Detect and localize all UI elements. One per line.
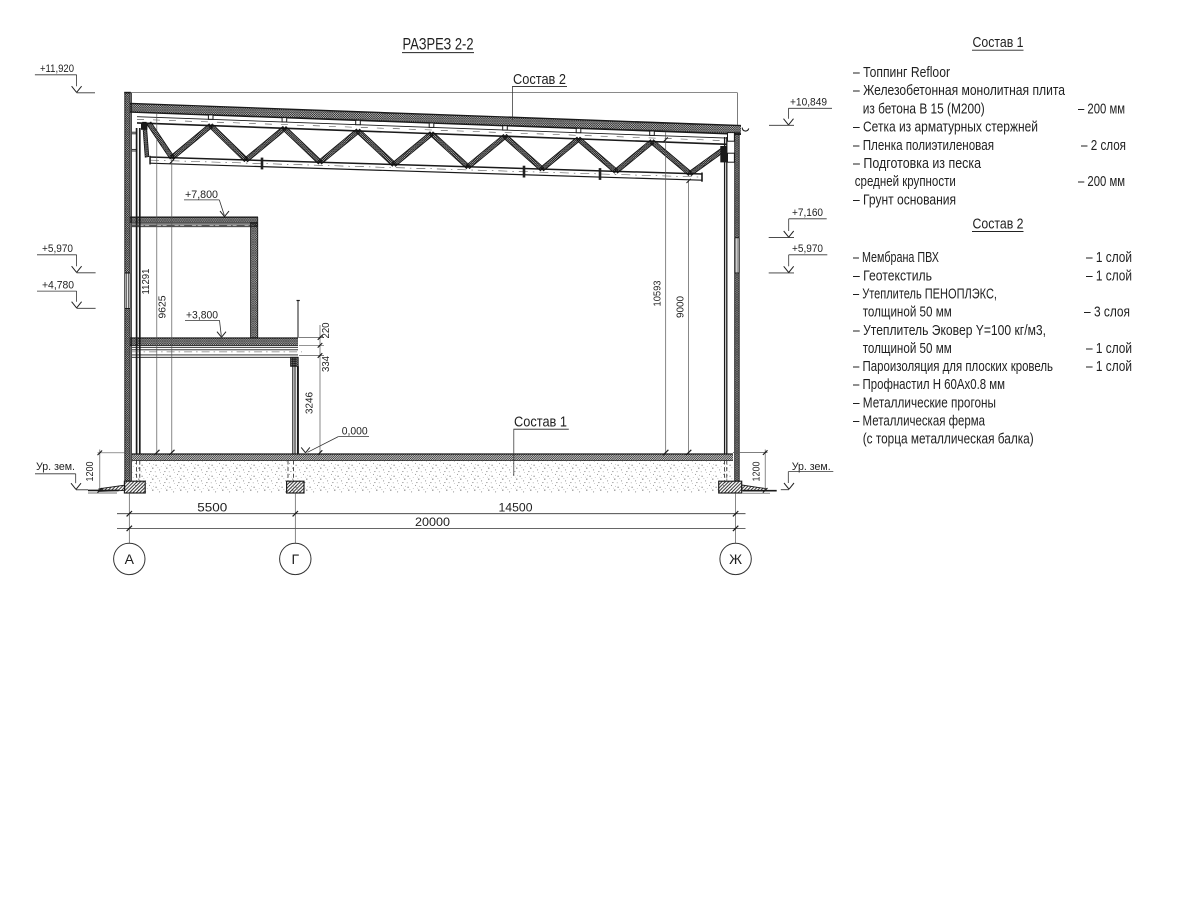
svg-text:+10,849: +10,849	[790, 97, 827, 109]
svg-text:Состав 1: Состав 1	[514, 414, 567, 431]
svg-text:– Профнастил Н 60Ах0.8 мм: – Профнастил Н 60Ах0.8 мм	[853, 376, 1005, 393]
svg-text:– Металлические прогоны: – Металлические прогоны	[853, 394, 996, 411]
svg-text:– Топпинг Refloor: – Топпинг Refloor	[853, 64, 950, 81]
svg-text:14500: 14500	[499, 500, 533, 514]
svg-text:– 200 мм: – 200 мм	[1078, 100, 1125, 117]
svg-text:+7,800: +7,800	[185, 189, 218, 201]
svg-text:0,000: 0,000	[342, 426, 368, 438]
svg-text:– Мембрана ПВХ: – Мембрана ПВХ	[853, 249, 939, 266]
svg-text:средней крупности: средней крупности	[855, 173, 956, 190]
svg-text:+4,780: +4,780	[42, 279, 74, 291]
svg-text:– 3 слоя: – 3 слоя	[1084, 304, 1130, 321]
svg-text:– Пленка полиэтиленовая: – Пленка полиэтиленовая	[853, 137, 994, 154]
svg-text:Состав 2: Состав 2	[513, 71, 566, 88]
svg-text:(с торца металлическая балка): (с торца металлическая балка)	[863, 431, 1034, 448]
svg-text:10593: 10593	[652, 280, 664, 306]
svg-text:– 200 мм: – 200 мм	[1078, 173, 1125, 190]
svg-text:+3,800: +3,800	[186, 309, 218, 321]
svg-text:220: 220	[320, 322, 332, 338]
svg-text:9625: 9625	[156, 295, 168, 318]
svg-text:Состав 1: Состав 1	[973, 34, 1024, 51]
svg-text:– Сетка из арматурных стержней: – Сетка из арматурных стержней	[853, 119, 1038, 136]
svg-text:– Подготовка из песка: – Подготовка из песка	[853, 155, 982, 172]
svg-text:– Металлическая ферма: – Металлическая ферма	[853, 413, 985, 430]
svg-text:– Пароизоляция для плоских кро: – Пароизоляция для плоских кровель	[853, 358, 1053, 375]
svg-text:Ж: Ж	[729, 551, 742, 567]
svg-text:– 1 слой: – 1 слой	[1086, 340, 1132, 357]
svg-text:– Утеплитель ПЕНОПЛЭКС,: – Утеплитель ПЕНОПЛЭКС,	[853, 286, 997, 303]
svg-text:3246: 3246	[303, 392, 315, 414]
svg-text:334: 334	[320, 356, 332, 372]
svg-text:– 1 слой: – 1 слой	[1086, 267, 1132, 284]
svg-text:Ур. зем.: Ур. зем.	[36, 461, 75, 473]
svg-text:+5,970: +5,970	[792, 243, 823, 255]
svg-text:5500: 5500	[197, 500, 227, 514]
svg-text:Состав 2: Состав 2	[973, 215, 1024, 232]
svg-text:Ур. зем.: Ур. зем.	[792, 461, 831, 473]
svg-text:+5,970: +5,970	[42, 243, 73, 255]
svg-text:толщиной 50 мм: толщиной 50 мм	[863, 304, 952, 321]
svg-text:11291: 11291	[140, 268, 152, 294]
svg-text:– Железобетонная монолитная п: – Железобетонная монолитная плита	[853, 82, 1066, 99]
svg-text:– 1 слой: – 1 слой	[1086, 249, 1132, 266]
svg-text:А: А	[125, 551, 135, 567]
svg-text:– Утеплитель Эковер Y=100 кг/м: – Утеплитель Эковер Y=100 кг/м3,	[853, 322, 1046, 339]
svg-text:толщиной 50 мм: толщиной 50 мм	[863, 340, 952, 357]
svg-text:1200: 1200	[751, 461, 763, 481]
svg-text:из бетона В 15 (М200): из бетона В 15 (М200)	[863, 100, 985, 117]
svg-text:Г: Г	[292, 551, 300, 567]
svg-text:+7,160: +7,160	[792, 207, 823, 219]
svg-text:1200: 1200	[84, 461, 96, 481]
svg-text:– Геотекстиль: – Геотекстиль	[853, 267, 932, 284]
svg-text:– Грунт основания: – Грунт основания	[853, 191, 956, 208]
svg-text:– 2 слоя: – 2 слоя	[1081, 137, 1126, 154]
svg-text:– 1 слой: – 1 слой	[1086, 358, 1132, 375]
svg-text:20000: 20000	[415, 515, 450, 529]
svg-text:9000: 9000	[675, 296, 687, 318]
svg-text:+11,920: +11,920	[40, 63, 74, 75]
svg-text:РАЗРЕЗ 2-2: РАЗРЕЗ 2-2	[403, 35, 474, 54]
